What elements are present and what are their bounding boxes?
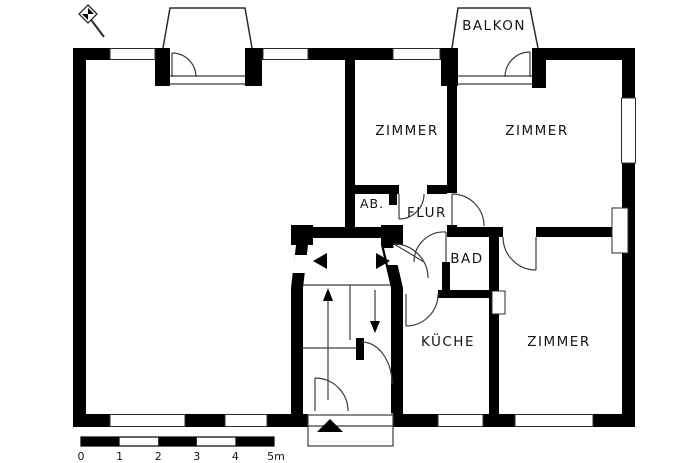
window-top-3 xyxy=(393,49,440,60)
room-label-flur: FLUR xyxy=(407,205,447,221)
stair-down-arrow-head xyxy=(370,321,380,333)
scale-tick-5m: 5m xyxy=(267,450,285,463)
scale-tick-3: 3 xyxy=(193,450,200,463)
scale-tick-1: 1 xyxy=(116,450,123,463)
window-top-2 xyxy=(263,49,308,60)
scale-tick-4: 4 xyxy=(232,450,239,463)
scale-bar: 0 1 2 3 4 5m xyxy=(78,437,285,463)
room-label-zimmer-bottom-right: ZIMMER xyxy=(527,334,590,350)
floor-plan-drawing: BALKON ZIMMER ZIMMER AB. FLUR BAD KÜCHE … xyxy=(0,0,700,463)
north-arrow-icon xyxy=(79,5,104,37)
niche-right-wall xyxy=(612,208,628,253)
balcony-left-opening xyxy=(170,47,245,61)
scale-tick-2: 2 xyxy=(155,450,162,463)
flat-arrow-left-icon xyxy=(313,253,327,269)
room-label-bad: BAD xyxy=(450,251,483,267)
room-label-zimmer-top-right: ZIMMER xyxy=(505,123,568,139)
stair-up-arrow-head xyxy=(323,288,333,301)
niche-bad-shaft xyxy=(492,291,505,314)
window-bottom-2 xyxy=(225,415,267,427)
balcony-left-outline xyxy=(163,8,252,84)
floor-plan-page: BALKON ZIMMER ZIMMER AB. FLUR BAD KÜCHE … xyxy=(0,0,700,463)
scale-tick-0: 0 xyxy=(78,450,85,463)
room-label-balkon: BALKON xyxy=(462,18,526,34)
room-label-zimmer-top-middle: ZIMMER xyxy=(375,123,438,139)
window-kitchen xyxy=(438,415,483,427)
room-label-ab: AB. xyxy=(360,196,384,211)
window-right xyxy=(622,98,636,163)
window-bottom-1 xyxy=(110,415,185,427)
window-zimmer-bottom xyxy=(515,415,593,427)
interior-walls xyxy=(291,48,622,414)
window-top-1 xyxy=(110,49,155,60)
room-label-kueche: KÜCHE xyxy=(421,332,475,350)
stair-door-break-left xyxy=(292,255,308,273)
